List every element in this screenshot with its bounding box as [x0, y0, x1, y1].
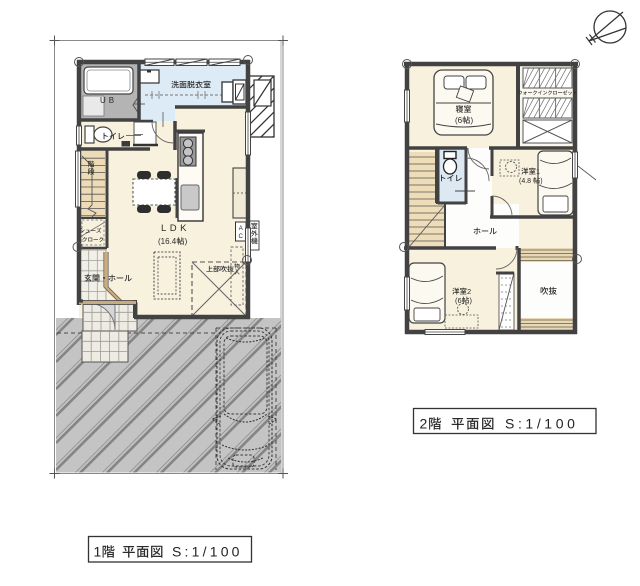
- svg-text:C: C: [239, 234, 244, 240]
- svg-text:A: A: [239, 226, 243, 232]
- svg-text:LDK: LDK: [161, 223, 190, 234]
- svg-text:2: 2: [467, 287, 471, 296]
- svg-text:1: 1: [94, 544, 102, 560]
- svg-text:S:1/100: S:1/100: [172, 544, 243, 560]
- svg-text:(16.4: (16.4: [158, 237, 177, 246]
- svg-text:(4.8: (4.8: [519, 178, 531, 185]
- svg-text:2: 2: [420, 416, 428, 432]
- svg-text:): ): [540, 178, 542, 185]
- svg-text:(6: (6: [455, 296, 462, 305]
- svg-text:): ): [185, 237, 188, 246]
- svg-text:): ): [471, 116, 474, 125]
- svg-text:1: 1: [536, 167, 540, 176]
- svg-text:S:1/100: S:1/100: [505, 416, 578, 432]
- svg-text:(6: (6: [455, 116, 463, 125]
- svg-text:UB: UB: [100, 96, 117, 105]
